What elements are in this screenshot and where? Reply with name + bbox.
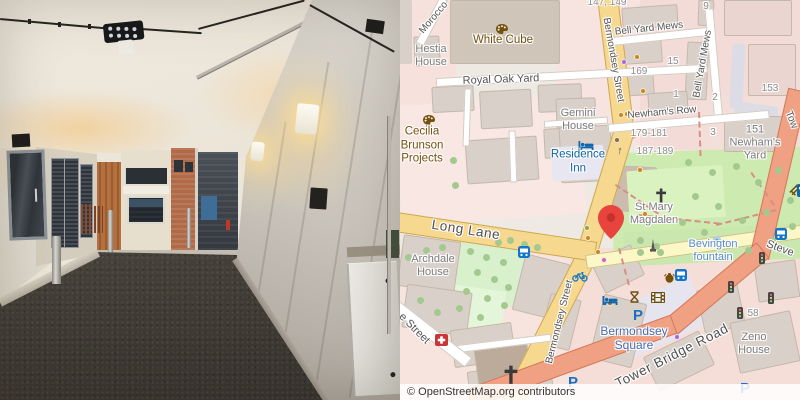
poi-dot xyxy=(674,334,680,340)
tree-icon xyxy=(715,203,722,210)
tree-icon xyxy=(534,244,541,251)
map-label: 1 xyxy=(673,89,679,101)
brick-window xyxy=(185,162,193,172)
tree-icon xyxy=(501,302,508,309)
tree-icon xyxy=(452,182,459,189)
map-canvas[interactable]: PPP↑MoroccoBell Yard MewsBell Yard MewsB… xyxy=(400,0,800,400)
tree-icon xyxy=(739,217,746,224)
brick-window xyxy=(174,160,183,172)
garage-door xyxy=(127,196,165,224)
tree-icon xyxy=(463,288,470,295)
tree-icon xyxy=(755,179,762,186)
vertical-conduit xyxy=(388,116,391,334)
map-label: 147, 149 xyxy=(588,0,627,9)
building xyxy=(754,259,800,302)
tree-icon xyxy=(417,297,424,304)
map-label: 9 xyxy=(703,1,709,13)
poi-dot xyxy=(634,54,640,60)
building xyxy=(465,136,540,185)
tree-icon xyxy=(477,314,484,321)
tree-icon xyxy=(787,197,794,204)
poi-dot xyxy=(637,167,643,173)
cable-clip xyxy=(88,24,91,29)
poi-dot xyxy=(595,249,601,255)
dark-louvered-building xyxy=(198,152,238,264)
tree-icon xyxy=(467,248,474,255)
glass-door xyxy=(6,149,47,240)
tree-icon xyxy=(692,193,699,200)
tree-icon xyxy=(434,309,441,316)
floodlight-mount xyxy=(118,39,134,54)
map-label: 153 xyxy=(762,83,779,95)
map-label: Bevington fountain xyxy=(689,238,738,264)
cable-clip xyxy=(58,22,61,27)
tree-icon xyxy=(709,169,716,176)
tree-icon xyxy=(701,229,708,236)
geolocation-split-view: PPP↑MoroccoBell Yard MewsBell Yard MewsB… xyxy=(0,0,800,400)
poi-dot xyxy=(621,59,627,65)
map-label: St Mary Magdalen xyxy=(630,201,678,227)
poi-dot xyxy=(585,235,591,241)
tree-icon xyxy=(483,254,490,261)
tree-icon xyxy=(500,259,507,266)
louvered-double-door xyxy=(51,158,79,248)
chair xyxy=(81,204,92,234)
map-label: 3 xyxy=(710,127,716,139)
wall-light xyxy=(250,141,265,161)
intercom-box xyxy=(309,187,327,209)
tree-icon xyxy=(507,237,514,244)
map-label: Zeno House xyxy=(738,331,770,357)
map-label: 169 xyxy=(631,66,648,78)
building xyxy=(479,89,533,130)
garage-glazing xyxy=(129,199,163,207)
cable-clip xyxy=(28,19,31,24)
map-layers: PPP↑MoroccoBell Yard MewsBell Yard MewsB… xyxy=(400,0,800,400)
tree-icon xyxy=(491,276,498,283)
tree-icon xyxy=(685,159,692,166)
outdoor-chairs xyxy=(81,202,105,242)
bollard xyxy=(52,236,61,284)
parking-letter: P xyxy=(633,307,643,324)
tree-icon xyxy=(439,244,446,251)
building xyxy=(724,0,792,36)
map-label: 151 Newham's Yard xyxy=(729,124,780,163)
chair xyxy=(94,206,103,233)
map-label: Gemini House xyxy=(561,107,596,133)
utility-cabinet xyxy=(347,261,400,396)
map-label: 58 xyxy=(747,308,758,320)
tree-icon xyxy=(456,305,463,312)
attribution-text: © OpenStreetMap.org contributors xyxy=(407,384,575,400)
tree-icon xyxy=(789,223,796,230)
blue-tarp xyxy=(201,196,217,220)
map-label: Cecilia Brunson Projects xyxy=(401,126,444,167)
poi-dot xyxy=(584,225,590,231)
poi-dot xyxy=(640,88,646,94)
tree-icon xyxy=(637,237,644,244)
fire-extinguisher xyxy=(226,220,230,230)
white-fascia xyxy=(123,186,169,194)
map-label: 187-189 xyxy=(637,146,674,158)
poi-dot xyxy=(601,257,607,263)
map-label: Royal Oak Yard xyxy=(462,72,539,88)
map-label: Bermondsey Square xyxy=(600,324,667,352)
tree-icon xyxy=(474,269,481,276)
tree-icon xyxy=(484,295,491,302)
tree-icon xyxy=(775,167,782,174)
tree-icon xyxy=(763,209,770,216)
ceiling-floodlight xyxy=(102,14,150,56)
tree-icon xyxy=(450,157,457,164)
map-attribution: © OpenStreetMap.org contributors xyxy=(400,384,800,400)
map-label: 179-181 xyxy=(631,128,668,140)
map-label: White Cube xyxy=(473,34,533,48)
junction-box xyxy=(365,19,385,34)
tree-icon xyxy=(679,219,686,226)
parking-icon: P xyxy=(633,307,643,325)
cabinet-hinge xyxy=(390,372,395,377)
bollard xyxy=(108,210,113,254)
tree-icon xyxy=(505,284,512,291)
door-handle xyxy=(35,189,37,202)
tree-icon xyxy=(733,163,740,170)
window-band xyxy=(125,168,167,184)
street-photo-pane xyxy=(0,0,400,400)
tree-icon xyxy=(637,249,644,256)
arrow-glyph: ↑ xyxy=(617,145,624,157)
bollard xyxy=(187,208,191,248)
left-wall-lamp xyxy=(12,134,31,148)
landuse-zone xyxy=(400,0,412,64)
door-mullion xyxy=(64,159,65,247)
map-label: Hestia House xyxy=(415,43,447,69)
map-label: 2 xyxy=(712,92,718,104)
tree-icon xyxy=(745,247,752,254)
map-label: Residence Inn xyxy=(551,148,605,175)
wall-light xyxy=(294,103,319,135)
map-label: Archdale House xyxy=(411,253,454,279)
map-label: 15 xyxy=(667,56,678,68)
tree-icon xyxy=(657,249,664,256)
